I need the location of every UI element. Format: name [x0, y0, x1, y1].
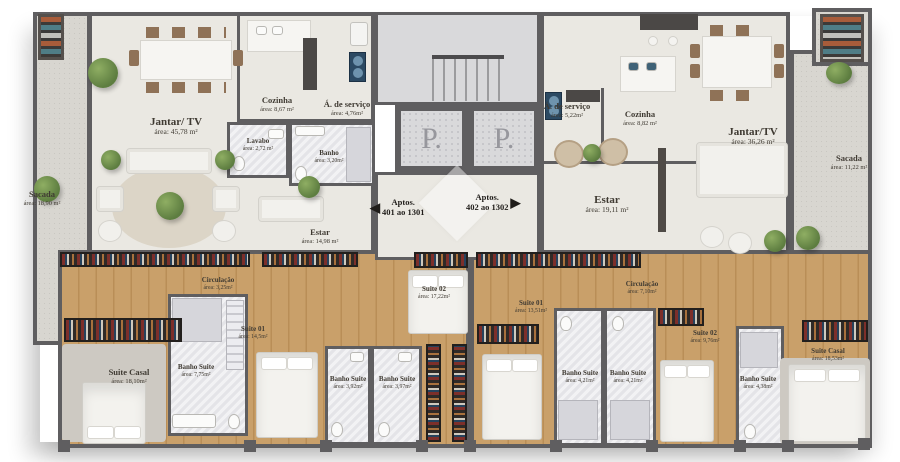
- tv-panel: [658, 148, 666, 232]
- room-label-banho-casal-left: Banho Suite área: 7,75m²: [160, 364, 232, 378]
- room-label-sacada-right: Sacada área: 11,22 m²: [806, 154, 892, 171]
- room-label-banho-s02-left: Banho Suite área: 3,97m²: [371, 376, 423, 390]
- wardrobe: [262, 252, 358, 267]
- dining-chair-left: [129, 50, 139, 66]
- rattan-chair: [554, 140, 584, 168]
- stool: [648, 36, 658, 46]
- shower: [558, 400, 598, 440]
- pillar: [646, 440, 658, 452]
- room-label-suite-02-right: Suite 02 área: 9,76m²: [676, 330, 734, 344]
- plant: [796, 226, 820, 250]
- plant: [88, 58, 118, 88]
- elevator-right-label: P.: [494, 122, 515, 156]
- wardrobe: [414, 252, 468, 268]
- sign-apts-right-text: Aptos. 402 ao 1302: [466, 193, 509, 213]
- shelf-band: [476, 252, 641, 268]
- sign-apts-right: Aptos. 402 ao 1302 ▶: [466, 193, 521, 213]
- room-label-suite-01-right: Suite 01 área: 13,51m²: [496, 300, 566, 314]
- pillar: [782, 440, 794, 452]
- pillar: [550, 440, 562, 452]
- wardrobe: [658, 308, 704, 326]
- room-label-banho-left: Banho área: 3,20m²: [299, 150, 359, 164]
- dining-chairs-bottom: [146, 82, 226, 93]
- sofa-jantar-left: [126, 148, 212, 174]
- room-label-suite-casal-left: Suite Casal área: 18,10m²: [90, 368, 168, 385]
- plant: [826, 62, 852, 84]
- balcony-bookshelf-left: [38, 14, 64, 60]
- closet-rack: [452, 344, 467, 442]
- stairs-steps: [432, 55, 504, 101]
- kitchen-sink: [256, 26, 267, 35]
- dining-chairs-bottom: [710, 90, 762, 101]
- pillar: [58, 440, 70, 452]
- wardrobe: [64, 318, 182, 342]
- kitchen-sink: [646, 62, 657, 71]
- room-label-banho-s02-right: Banho Suite área: 4,38m²: [732, 376, 784, 390]
- pillar: [858, 438, 870, 450]
- dining-chair-right: [233, 50, 243, 66]
- toilet: [331, 422, 343, 437]
- room-label-suite-02-left: Suite 02 área: 17,22m²: [406, 286, 462, 300]
- plant: [156, 192, 184, 220]
- pouf: [728, 232, 752, 254]
- room-label-cozinha-left: Cozinha área: 8,67 m²: [238, 96, 316, 113]
- stool: [668, 36, 678, 46]
- room-label-banho-s01-left: Banho Suite área: 3,92m²: [323, 376, 373, 390]
- arrow-right-icon: ▶: [511, 196, 521, 209]
- sign-apts-left-text: Aptos. 401 ao 1301: [382, 198, 425, 218]
- toilet: [612, 316, 624, 331]
- elevator-left: P.: [395, 105, 468, 172]
- room-label-banho-b-right: Banho Suite área: 4,21m²: [602, 370, 654, 384]
- sofa-jantar-right: [696, 142, 788, 198]
- room-label-lavabo: Lavabo área: 2,72 m²: [229, 138, 287, 152]
- toilet: [744, 424, 756, 439]
- room-label-circulacao-left: Circulação área: 3,25m²: [180, 277, 256, 291]
- wardrobe: [477, 324, 539, 344]
- dining-chair: [774, 44, 784, 58]
- dining-chairs-top: [146, 27, 226, 38]
- pillar: [244, 440, 256, 452]
- kitchen-counter-right: [640, 14, 698, 30]
- room-label-banho-a-right: Banho Suite área: 4,21m²: [556, 370, 604, 384]
- sink: [350, 352, 364, 362]
- pillar: [320, 440, 332, 452]
- balcony-bookshelf-right: [820, 14, 864, 62]
- room-label-jantar-left: Jantar/ TV área: 45,78 m²: [128, 116, 224, 137]
- room-label-circulacao-right: Circulação área: 7,10m²: [608, 281, 676, 295]
- rattan-chair: [598, 138, 628, 166]
- bed-suite-casal-right: [788, 364, 866, 442]
- bed-suite-casal-left: [82, 382, 146, 444]
- sign-apts-left: ◀ Aptos. 401 ao 1301: [370, 198, 425, 218]
- arrow-left-icon: ◀: [370, 201, 380, 214]
- shower: [740, 332, 778, 368]
- wardrobe: [60, 252, 250, 267]
- bed-suite-01-right: [482, 354, 542, 440]
- dining-table: [140, 40, 232, 80]
- pillar: [464, 440, 476, 452]
- vanity: [295, 126, 325, 136]
- armchair: [212, 186, 240, 212]
- sink: [398, 352, 412, 362]
- wardrobe: [802, 320, 868, 342]
- pillar: [416, 440, 428, 452]
- plant: [583, 144, 601, 162]
- dining-chair: [690, 64, 700, 78]
- pouf: [212, 220, 236, 242]
- room-label-servico-left: Á. de serviço área: 4,76m²: [316, 100, 378, 117]
- kitchen-sink: [272, 26, 283, 35]
- pouf: [98, 220, 122, 242]
- shower: [610, 400, 650, 440]
- toilet: [560, 316, 572, 331]
- elevator-right: P.: [468, 105, 540, 172]
- room-label-sacada-left: Sacada área: 18,90 m²: [0, 190, 84, 207]
- room-label-jantar-right: Jantar/TV área: 36,26 m²: [706, 126, 800, 147]
- washer-dryer: [349, 52, 366, 82]
- armchair: [96, 186, 124, 212]
- plant: [101, 150, 121, 170]
- pillar: [734, 440, 746, 452]
- laundry-tub: [350, 22, 368, 46]
- bed-suite-02-right: [660, 360, 714, 442]
- pouf: [700, 226, 724, 248]
- dining-chair: [774, 64, 784, 78]
- bed-suite-01-left: [256, 352, 318, 438]
- toilet: [378, 422, 390, 437]
- bed-suite-02-left: [408, 270, 468, 334]
- kitchen-island-left: [247, 20, 311, 52]
- elevator-left-label: P.: [421, 122, 442, 156]
- plant: [215, 150, 235, 170]
- room-label-servico-right: Á. de serviço área: 5,22m²: [536, 102, 598, 119]
- plant: [764, 230, 786, 252]
- dining-table-right: [702, 36, 772, 88]
- sofa-estar-left: [258, 196, 324, 222]
- room-label-estar-right: Estar área: 19,11 m²: [570, 194, 644, 215]
- room-label-suite-01-left: Suite 01 área: 14,5m²: [218, 326, 288, 340]
- toilet: [228, 414, 240, 429]
- kitchen-sink: [628, 62, 639, 71]
- plant: [298, 176, 320, 198]
- room-label-estar-left: Estar área: 14,98 m²: [285, 228, 355, 245]
- closet-rack: [426, 344, 441, 442]
- room-label-cozinha-right: Cozinha área: 8,82 m²: [604, 110, 676, 127]
- dining-chairs-top: [710, 25, 762, 36]
- room-label-suite-casal-right: Suite Casal área: 18,53m²: [790, 348, 866, 362]
- dining-chair: [690, 44, 700, 58]
- vanity: [172, 414, 216, 428]
- kitchen-counter-left: [303, 38, 317, 90]
- floor-plan: P. P. ◀ Aptos. 401 ao 1301 Aptos. 402 ao…: [0, 0, 900, 462]
